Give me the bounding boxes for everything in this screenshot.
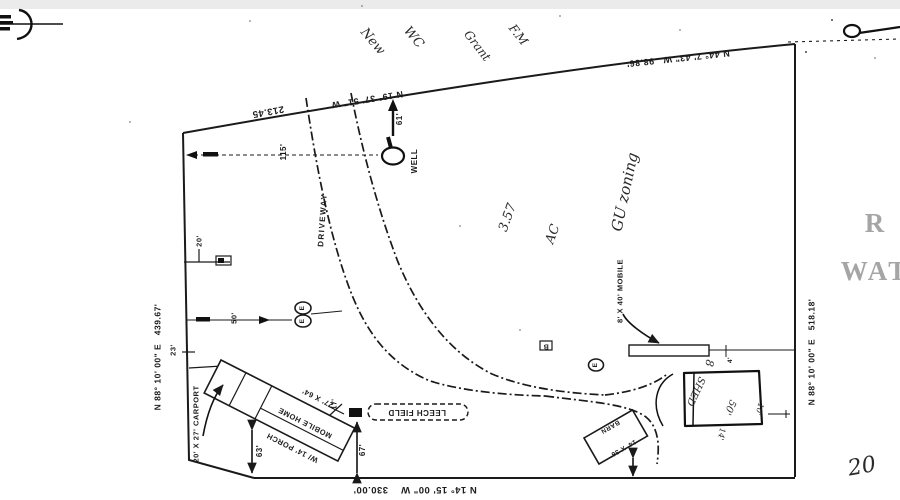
scan-noise bbox=[129, 5, 876, 331]
acreage-value: 3.57 bbox=[496, 201, 521, 234]
corner-handwriting: 20 bbox=[846, 451, 878, 483]
dim-20: 20' bbox=[194, 235, 203, 247]
dim-115: 115' bbox=[279, 144, 289, 161]
plat-linework bbox=[0, 0, 900, 500]
dim-23: 23' bbox=[168, 344, 177, 356]
stamp-line-1: R bbox=[865, 207, 888, 241]
mobile-8x40-arrow bbox=[623, 314, 659, 343]
well-label: WELL bbox=[410, 149, 420, 174]
marker-e-label-1: E bbox=[299, 306, 307, 311]
marker-b-label: B bbox=[543, 341, 549, 350]
acreage-unit: AC bbox=[541, 218, 566, 251]
mobile-home-porch-line: W/ 14' PORCH bbox=[264, 430, 321, 465]
mobile-8x40-outline bbox=[629, 345, 795, 357]
dim-61: 61' bbox=[395, 113, 405, 125]
well-symbol bbox=[382, 99, 404, 165]
dim-63: 63' bbox=[255, 445, 265, 457]
bearing-bottom: N 14° 15' 00" W 330.00' bbox=[353, 483, 477, 495]
dim-4: 4' bbox=[727, 357, 735, 363]
mobile-home-name-line: MOBILE HOME bbox=[276, 405, 333, 440]
barn-size-line: 14' X 36' bbox=[607, 437, 637, 459]
dim-50: 50' bbox=[229, 312, 238, 324]
bearing-right: N 88° 10' 00" E 518.18' bbox=[807, 299, 818, 406]
dim-50-feature bbox=[186, 302, 342, 327]
shed-size-line: 50' bbox=[717, 390, 741, 423]
marker-e-label-2: E bbox=[299, 319, 307, 324]
dim-20-feature bbox=[184, 249, 231, 265]
dim-67: 67' bbox=[358, 444, 368, 456]
carport-label: 20' X 27' CARPORT bbox=[191, 385, 200, 462]
shed-name-line: SHED bbox=[683, 374, 707, 407]
corner-scribble bbox=[805, 19, 900, 53]
leech-field-label: LEECH FIELD bbox=[388, 407, 446, 417]
dim-17: 17' bbox=[332, 399, 341, 410]
marker-e-label-3: E bbox=[592, 363, 600, 368]
north-arrow-doodle bbox=[0, 10, 63, 39]
stamp-line-2: WAT bbox=[841, 255, 900, 289]
dim-14: 14' bbox=[715, 427, 727, 441]
scanned-survey-plat: N 19° 37' 51" W 213.45 N 44° 7' 43" W 98… bbox=[0, 0, 900, 500]
mobile-8x40-label: 8' X 40' MOBILE bbox=[615, 259, 624, 323]
bearing-left: N 88° 10' 00" E 439.67' bbox=[153, 304, 164, 411]
barn-name-line: BARN bbox=[595, 415, 625, 437]
